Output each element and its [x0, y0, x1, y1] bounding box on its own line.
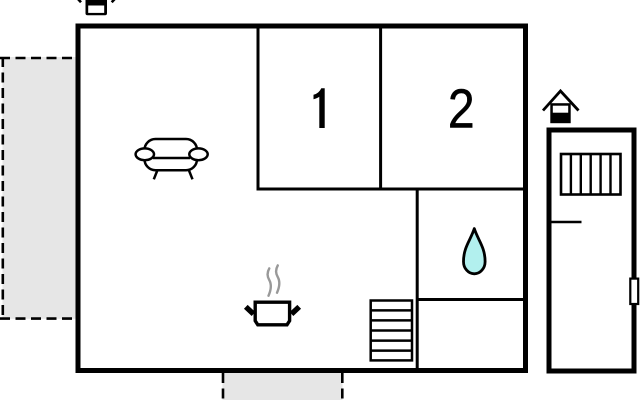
svg-text:2: 2: [448, 77, 475, 139]
